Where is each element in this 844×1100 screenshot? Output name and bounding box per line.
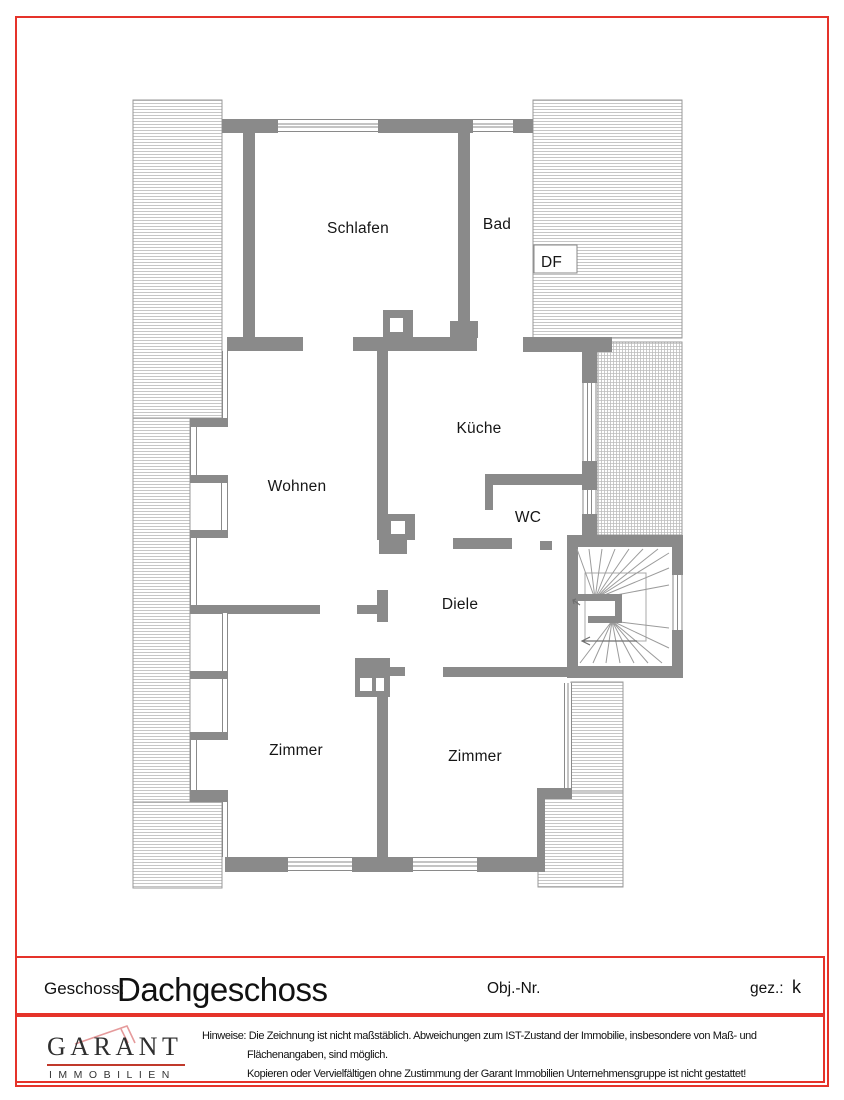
drawn-by-label: gez.:	[750, 981, 784, 997]
staircase	[573, 549, 669, 663]
room-labels: Schlafen Bad DF Küche Wohnen WC Diele Zi…	[268, 216, 562, 765]
stair-newel	[574, 594, 622, 623]
room-label-zimmer-left: Zimmer	[269, 742, 323, 759]
title-block: Geschoss: Dachgeschoss Obj.-Nr. gez.: k	[15, 956, 825, 1015]
logo-subtitle: IMMOBILIEN	[49, 1070, 176, 1081]
footer-block: GARANT IMMOBILIEN Hinweise: Die Zeichnun…	[15, 1015, 825, 1083]
floor-label: Geschoss:	[44, 980, 124, 997]
room-label-wc: WC	[515, 509, 541, 526]
garant-logo: GARANT IMMOBILIEN	[45, 1022, 195, 1080]
room-label-schlafen: Schlafen	[327, 220, 389, 237]
drawn-by-value: k	[792, 978, 801, 996]
room-label-bad: Bad	[483, 216, 511, 233]
stair-treads	[577, 549, 669, 663]
notice-label: Hinweise:	[202, 1030, 246, 1042]
notice-text: Hinweise: Die Zeichnung ist nicht maßstä…	[202, 1027, 757, 1084]
notice-line-2: Flächenangaben, sind möglich.	[202, 1046, 757, 1065]
floor-plan-page: Schlafen Bad DF Küche Wohnen WC Diele Zi…	[0, 0, 844, 1100]
room-label-diele: Diele	[442, 596, 478, 613]
logo-underline	[47, 1064, 185, 1066]
hatched-roof-areas	[133, 100, 682, 888]
object-number-label: Obj.-Nr.	[487, 981, 540, 997]
notice-line-1: Hinweise: Die Zeichnung ist nicht maßstä…	[202, 1027, 757, 1046]
balcony-crosshatch	[597, 342, 682, 535]
notice-line-3: Kopieren oder Vervielfältigen ohne Zusti…	[202, 1065, 757, 1084]
floor-plan-drawing: Schlafen Bad DF Küche Wohnen WC Diele Zi…	[0, 0, 844, 950]
logo-name: GARANT	[47, 1034, 182, 1060]
floor-value: Dachgeschoss	[117, 973, 327, 1006]
room-label-wohnen: Wohnen	[268, 478, 327, 495]
room-label-kueche: Küche	[457, 420, 502, 437]
room-label-zimmer-right: Zimmer	[448, 748, 502, 765]
room-label-df: DF	[541, 254, 562, 271]
